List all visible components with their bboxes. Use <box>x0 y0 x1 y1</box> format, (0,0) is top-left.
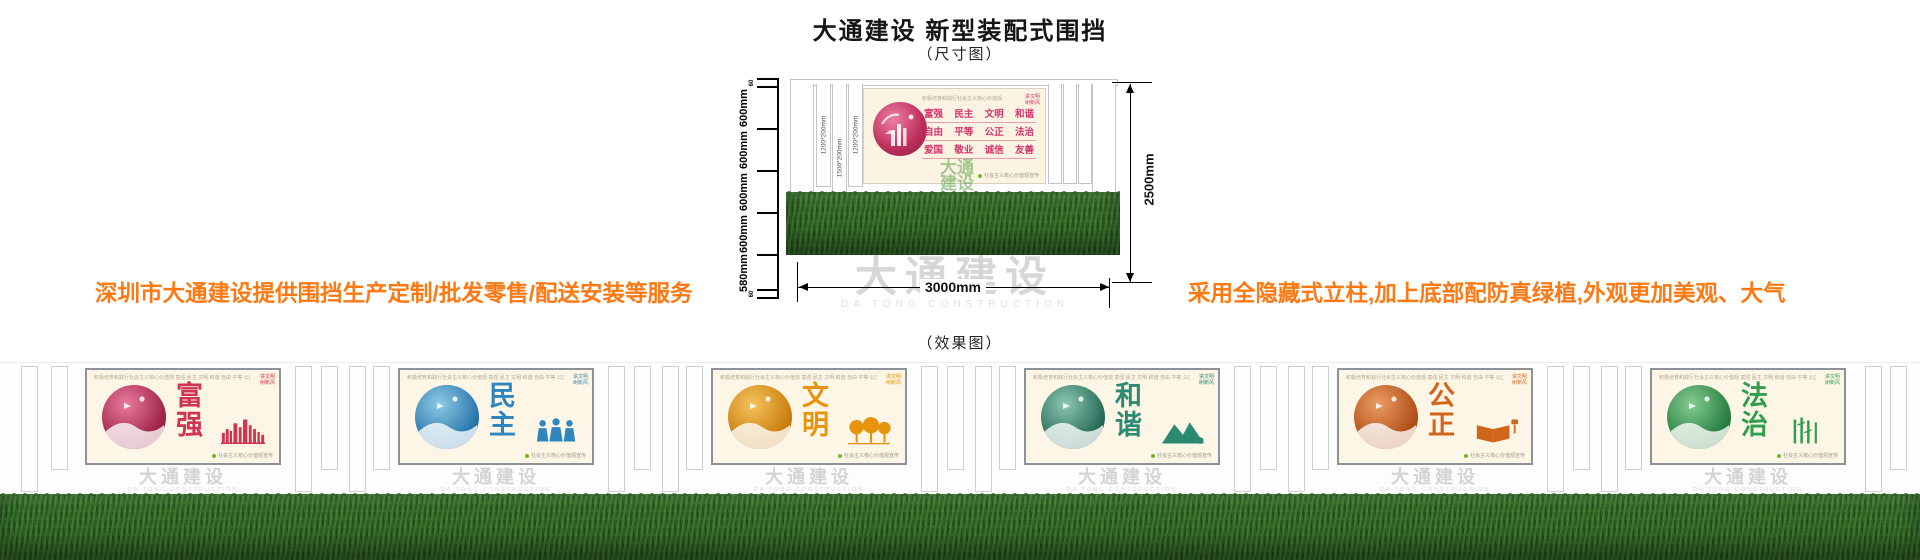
green-dot-icon <box>1151 454 1155 458</box>
effect-panel-6: 积极培育和践行社会主义核心价值观 富强 民主 文明 和谐 自由 平等 公正 法治… <box>1650 368 1846 465</box>
mountain-motif-icon <box>1160 416 1206 446</box>
effect-panel-2: 积极培育和践行社会主义核心价值观 富强 民主 文明 和谐 自由 平等 公正 法治… <box>398 368 594 465</box>
effect-panel-header: 积极培育和践行社会主义核心价值观 富强 民主 文明 和谐 自由 平等 公正 法治… <box>1659 374 1816 381</box>
effect-panel-header: 积极培育和践行社会主义核心价值观 富强 民主 文明 和谐 自由 平等 公正 法治… <box>407 374 564 381</box>
corner-line: 树新风 <box>1512 380 1527 386</box>
corner-line: 树新风 <box>1199 380 1214 386</box>
papercut-circle-illustration <box>728 385 792 449</box>
footnote-text: 社会主义核心价值观宣传 <box>844 452 899 459</box>
bamboo-motif-icon <box>1786 416 1832 446</box>
effect-panel-header: 积极培育和践行社会主义核心价值观 富强 民主 文明 和谐 自由 平等 公正 法治… <box>720 374 877 381</box>
core-value-word: 民主 <box>954 106 973 120</box>
watermark-cn: 大通建设 <box>1024 468 1220 486</box>
papercut-detail-icon <box>1041 385 1105 449</box>
fence-post-slat <box>662 366 679 492</box>
effect-panel-corner: 讲文明树新风 <box>573 374 588 387</box>
core-value-word: 富强 <box>924 106 943 120</box>
diagram-grass-hedge <box>786 192 1120 255</box>
green-dot-icon <box>1464 454 1468 458</box>
papercut-detail-icon <box>1667 385 1731 449</box>
panel-word-char: 民 <box>489 382 516 411</box>
core-values-grid: 富强民主文明和谐自由平等公正法治爱国敬业诚信友善 <box>922 105 1036 159</box>
green-dot-icon <box>212 454 216 458</box>
city-motif-icon <box>221 416 267 446</box>
plain-slat <box>1063 84 1077 184</box>
footnote-text: 社会主义核心价值观宣传 <box>1470 452 1525 459</box>
labeled-slat: 1200*200mm <box>848 84 863 187</box>
dimension-diagram-label: （尺寸图） <box>0 43 1920 64</box>
ruler-tick-label: 600mm <box>738 215 750 253</box>
core-value-word: 诚信 <box>985 142 1004 156</box>
ruler-segment: 60 <box>757 289 777 299</box>
core-value-word: 法治 <box>1015 124 1034 138</box>
core-value-word: 自由 <box>924 124 943 138</box>
core-values-row: 自由平等公正法治 <box>922 123 1036 141</box>
core-value-word: 文明 <box>985 106 1004 120</box>
fence-post-slat <box>608 366 625 492</box>
fence-post-slat <box>1865 366 1882 492</box>
fence-post-slat <box>1234 366 1251 492</box>
fence-post-slat <box>51 366 68 470</box>
watermark-cn: 大通建设 <box>398 468 594 486</box>
papercut-circle-illustration <box>415 385 479 449</box>
green-dot-icon <box>838 454 842 458</box>
dimension-cap <box>1112 82 1152 83</box>
height-ruler: 60600mm600mm600mm600mm580mm60 <box>757 78 779 299</box>
panel-word-char: 强 <box>176 411 203 440</box>
papercut-circle-illustration <box>1041 385 1105 449</box>
panel-word-char: 主 <box>489 411 516 440</box>
effect-panel-header: 积极培育和践行社会主义核心价值观 富强 民主 文明 和谐 自由 平等 公正 法治… <box>94 374 251 381</box>
footnote-text: 社会主义核心价值观宣传 <box>1157 452 1212 459</box>
core-value-word: 友善 <box>1015 142 1034 156</box>
papercut-circle-illustration <box>873 102 927 156</box>
effect-panel-4: 积极培育和践行社会主义核心价值观 富强 民主 文明 和谐 自由 平等 公正 法治… <box>1024 368 1220 465</box>
watermark-cn: 大通建设 <box>711 468 907 486</box>
corner-line: 树新风 <box>260 380 275 386</box>
effect-panel-corner: 讲文明树新风 <box>1825 374 1840 387</box>
ruler-segment: 600mm <box>757 86 777 128</box>
arrow-down-icon <box>1126 273 1134 282</box>
arrow-up-icon <box>1126 84 1134 93</box>
poster: 大通建设 新型装配式围挡 （尺寸图） 60600mm600mm600mm600m… <box>0 0 1920 560</box>
ruler-segment: 600mm <box>757 128 777 170</box>
effect-panel-footnote: 社会主义核心价值观宣传 <box>525 452 586 459</box>
fence-post-slat <box>634 366 651 470</box>
papercut-detail-icon <box>415 385 479 449</box>
panel-word-char: 富 <box>176 382 203 411</box>
overall-width-label: 3000mm <box>797 279 1109 297</box>
corner-line: 树新风 <box>1825 380 1840 386</box>
effect-panel-5: 积极培育和践行社会主义核心价值观 富强 民主 文明 和谐 自由 平等 公正 法治… <box>1337 368 1533 465</box>
fence-post-slat <box>321 366 338 470</box>
fence-post-slat <box>1260 366 1277 470</box>
slat-size-label: 1500*200mm <box>836 139 843 178</box>
green-dot-icon <box>525 454 529 458</box>
effect-panel-footnote: 社会主义核心价值观宣传 <box>1777 452 1838 459</box>
panel-word: 和谐 <box>1115 382 1142 439</box>
green-dot-icon <box>1777 454 1781 458</box>
ruler-tick-label: 60 <box>749 80 755 87</box>
core-values-row: 爱国敬业诚信友善 <box>922 141 1036 159</box>
people-motif-icon <box>534 416 580 446</box>
papercut-detail-icon <box>102 385 166 449</box>
effect-panel-header: 积极培育和践行社会主义核心价值观 富强 民主 文明 和谐 自由 平等 公正 法治… <box>1346 374 1503 381</box>
core-value-word: 平等 <box>954 124 973 138</box>
ruler-segment: 580mm <box>757 254 777 289</box>
core-values-row: 富强民主文明和谐 <box>922 105 1036 123</box>
effect-panel-corner: 讲文明树新风 <box>1512 374 1527 387</box>
city-papercut-icon <box>873 102 927 156</box>
panel-word-char: 文 <box>802 382 829 411</box>
slat-size-label: 1200*200mm <box>820 116 827 155</box>
fence-post-slat <box>999 366 1016 470</box>
panel-footnote: 社会主义核心价值观宣传 <box>978 172 1039 179</box>
feature-note: 采用全隐藏式立柱,加上底部配防真绿植,外观更加美观、大气 <box>1188 276 1786 308</box>
effect-panel-footnote: 社会主义核心价值观宣传 <box>1464 452 1525 459</box>
panel-word: 公正 <box>1428 382 1455 439</box>
ruler-tick-label: 600mm <box>738 89 750 127</box>
fence-post-slat <box>1890 366 1907 470</box>
effect-panel-3: 积极培育和践行社会主义核心价值观 富强 民主 文明 和谐 自由 平等 公正 法治… <box>711 368 907 465</box>
core-value-word: 公正 <box>985 124 1004 138</box>
service-note: 深圳市大通建设提供围挡生产定制/批发零售/配送安装等服务 <box>95 276 693 308</box>
fence-post-slat <box>1625 366 1642 470</box>
panel-word: 富强 <box>176 382 203 439</box>
papercut-detail-icon <box>728 385 792 449</box>
ruler-tick-label: 580mm <box>738 254 750 292</box>
panel-word-char: 明 <box>802 411 829 440</box>
panel-word-char: 治 <box>1741 411 1768 440</box>
plain-slat <box>1078 84 1092 184</box>
effect-panel-header: 积极培育和践行社会主义核心价值观 富强 民主 文明 和谐 自由 平等 公正 法治… <box>1033 374 1190 381</box>
ruler-segment: 600mm <box>757 170 777 212</box>
papercut-circle-illustration <box>1354 385 1418 449</box>
fence-post-slat <box>349 366 366 492</box>
slat-size-label: 1200*200mm <box>852 116 859 155</box>
watermark-cn: 大通建设 <box>85 468 281 486</box>
core-value-word: 爱国 <box>924 142 943 156</box>
effect-panel-corner: 讲文明树新风 <box>260 374 275 387</box>
fence-post-slat <box>947 366 964 470</box>
page-title: 大通建设 新型装配式围挡 <box>0 11 1920 46</box>
core-value-word: 和谐 <box>1015 106 1034 120</box>
trees-motif-icon <box>847 416 893 446</box>
fence-post-slat <box>373 366 390 470</box>
dimension-cap <box>1112 282 1152 283</box>
corner-line: 树新风 <box>886 380 901 386</box>
effect-panel-corner: 讲文明树新风 <box>886 374 901 387</box>
plain-slat <box>1048 84 1062 184</box>
book-motif-icon <box>1473 416 1519 446</box>
panel-word: 民主 <box>489 382 516 439</box>
watermark-cn: 大通建设 <box>1650 468 1846 486</box>
effect-panel-1: 积极培育和践行社会主义核心价值观 富强 民主 文明 和谐 自由 平等 公正 法治… <box>85 368 281 465</box>
corner-line: 树新风 <box>573 380 588 386</box>
fence-post-slat <box>1573 366 1590 470</box>
labeled-slat: 1200*200mm <box>816 84 831 187</box>
footnote-text: 社会主义核心价值观宣传 <box>531 452 586 459</box>
panel-word-char: 谐 <box>1115 411 1142 440</box>
panel-word: 文明 <box>802 382 829 439</box>
panel-word-char: 公 <box>1428 382 1455 411</box>
main-grass-hedge <box>0 494 1920 560</box>
effect-panel-footnote: 社会主义核心价值观宣传 <box>212 452 273 459</box>
watermark-cn: 大通建设 <box>1337 468 1533 486</box>
core-value-word: 敬业 <box>954 142 973 156</box>
effect-panel-corner: 讲文明树新风 <box>1199 374 1214 387</box>
panel-word: 法治 <box>1741 382 1768 439</box>
fence-post-slat <box>1312 366 1329 470</box>
ruler-segment: 600mm <box>757 212 777 254</box>
overall-height-label: 2500mm <box>1123 172 1175 187</box>
fence-post-slat <box>1547 366 1564 492</box>
effect-diagram-label: （效果图） <box>0 332 1920 353</box>
fence-post-slat <box>975 366 992 492</box>
panel-word-char: 法 <box>1741 382 1768 411</box>
papercut-circle-illustration <box>102 385 166 449</box>
fence-post-slat <box>1601 366 1618 492</box>
papercut-detail-icon <box>1354 385 1418 449</box>
dimension-bracket <box>1109 278 1110 308</box>
ruler-segment: 60 <box>757 78 777 86</box>
effect-panel-footnote: 社会主义核心价值观宣传 <box>838 452 899 459</box>
panel-header-text: 积极培育和践行社会主义核心价值观 <box>922 95 1022 102</box>
effect-panel-footnote: 社会主义核心价值观宣传 <box>1151 452 1212 459</box>
panel-word-char: 正 <box>1428 411 1455 440</box>
fence-post-slat <box>21 366 38 492</box>
fence-post-slat <box>295 366 312 492</box>
ruler-tick-label: 600mm <box>738 131 750 169</box>
fence-post-slat <box>686 366 703 470</box>
fence-post-slat <box>921 366 938 492</box>
fence-post-slat <box>1288 366 1305 492</box>
panel-word-char: 和 <box>1115 382 1142 411</box>
footnote-text: 社会主义核心价值观宣传 <box>1783 452 1838 459</box>
footnote-text: 社会主义核心价值观宣传 <box>218 452 273 459</box>
ruler-tick-label: 600mm <box>738 173 750 211</box>
papercut-circle-illustration <box>1667 385 1731 449</box>
ruler-tick-label: 60 <box>749 291 755 298</box>
